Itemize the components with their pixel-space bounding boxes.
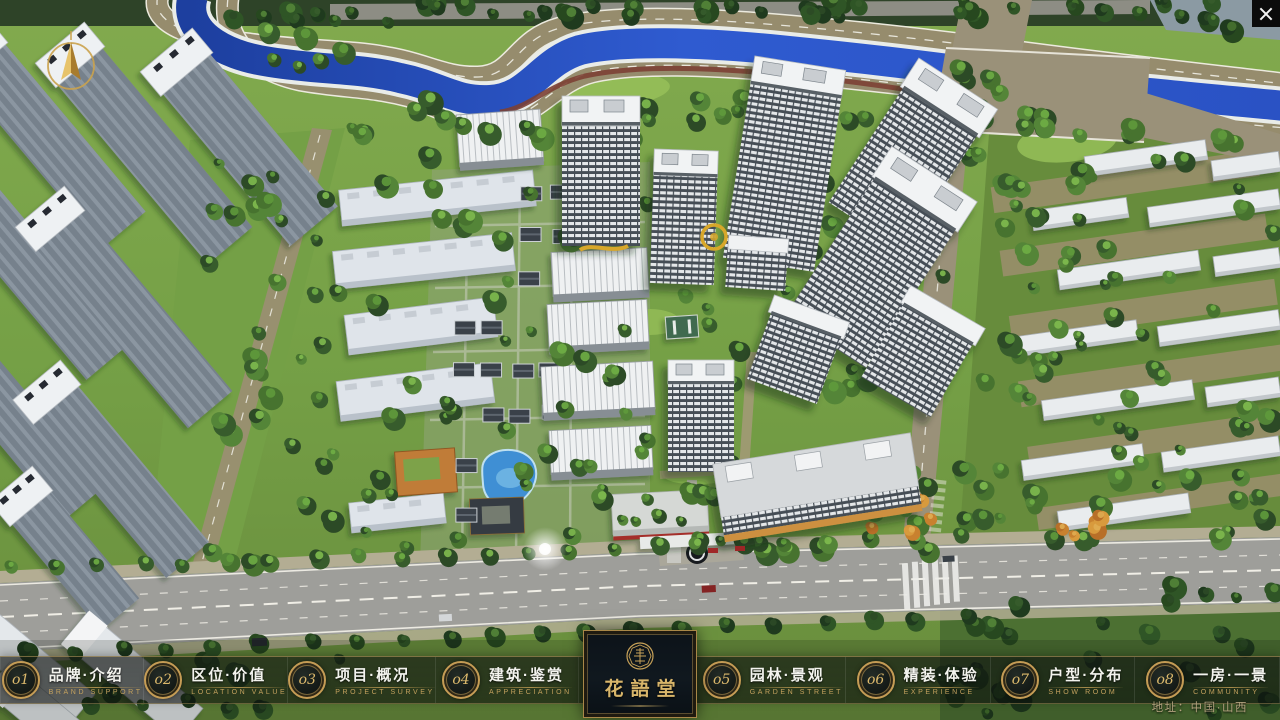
nav-item-brand-badge: o1: [2, 661, 40, 699]
app-window: o1 品牌·介绍BRAND SUPPORT o2 区位·价值LOCATION V…: [0, 0, 1280, 720]
nav-item-architecture[interactable]: o4 建筑·鉴赏APPRECIATION: [436, 657, 579, 703]
nav-label-zh: 项目·概况: [335, 664, 410, 685]
nav-item-interior[interactable]: o6 精装·体验EXPERIENCE: [846, 657, 991, 703]
compass-north-arrow-icon: [42, 30, 102, 98]
nav-label-en: PROJECT SURVEY: [335, 689, 435, 696]
nav-label-zh: 品牌·介绍: [49, 664, 124, 685]
nav-item-views-badge: o8: [1146, 661, 1184, 699]
gold-rule: [49, 687, 143, 688]
gold-rule: [904, 687, 979, 688]
logo-panel[interactable]: 花語堂: [583, 630, 697, 718]
project-address: 地址：中国·山西: [1152, 699, 1248, 715]
nav-label-en: APPRECIATION: [489, 689, 572, 696]
nav-item-project-badge: o3: [288, 661, 326, 699]
nav-item-garden-badge: o5: [703, 661, 741, 699]
gold-rule: [1193, 687, 1268, 688]
gold-rule: [489, 687, 572, 688]
nav-label-en: SHOW ROOM: [1048, 689, 1117, 696]
nav-label-zh: 园林·景观: [750, 664, 825, 685]
nav-label-zh: 户型·分布: [1048, 664, 1123, 685]
nav-item-location-badge: o2: [144, 661, 182, 699]
logo-subtitle-line: [611, 705, 669, 707]
seal-emblem-icon: [625, 641, 655, 671]
nav-label-en: GARDEN STREET: [750, 689, 843, 696]
nav-item-floorplan[interactable]: o7 户型·分布SHOW ROOM: [991, 657, 1136, 703]
gold-rule: [335, 687, 435, 688]
nav-label-zh: 区位·价值: [191, 664, 266, 685]
nav-label-zh: 一房·一景: [1193, 664, 1268, 685]
nav-item-architecture-badge: o4: [442, 661, 480, 699]
close-button[interactable]: [1252, 0, 1280, 27]
gold-rule: [191, 687, 287, 688]
nav-item-garden[interactable]: o5 园林·景观GARDEN STREET: [701, 657, 846, 703]
nav-item-floorplan-badge: o7: [1001, 661, 1039, 699]
nav-label-en: LOCATION VALUE: [191, 689, 287, 696]
nav-group-left: o1 品牌·介绍BRAND SUPPORT o2 区位·价值LOCATION V…: [0, 657, 579, 703]
nav-label-en: EXPERIENCE: [904, 689, 975, 696]
nav-item-interior-badge: o6: [857, 661, 895, 699]
nav-group-right: o5 园林·景观GARDEN STREET o6 精装·体验EXPERIENCE…: [701, 657, 1280, 703]
nav-item-brand[interactable]: o1 品牌·介绍BRAND SUPPORT: [0, 657, 144, 703]
logo-title: 花語堂: [597, 674, 682, 701]
nav-label-zh: 建筑·鉴赏: [489, 664, 564, 685]
nav-item-project[interactable]: o3 项目·概况PROJECT SURVEY: [288, 657, 436, 703]
nav-item-location[interactable]: o2 区位·价值LOCATION VALUE: [144, 657, 288, 703]
close-icon: [1258, 6, 1274, 22]
nav-item-views[interactable]: o8 一房·一景COMMUNITY: [1135, 657, 1280, 703]
masterplan-render: [0, 0, 1280, 720]
nav-label-en: COMMUNITY: [1193, 689, 1260, 696]
gold-rule: [750, 687, 843, 688]
nav-label-zh: 精装·体验: [904, 664, 979, 685]
gold-rule: [1048, 687, 1123, 688]
nav-label-en: BRAND SUPPORT: [49, 689, 143, 696]
